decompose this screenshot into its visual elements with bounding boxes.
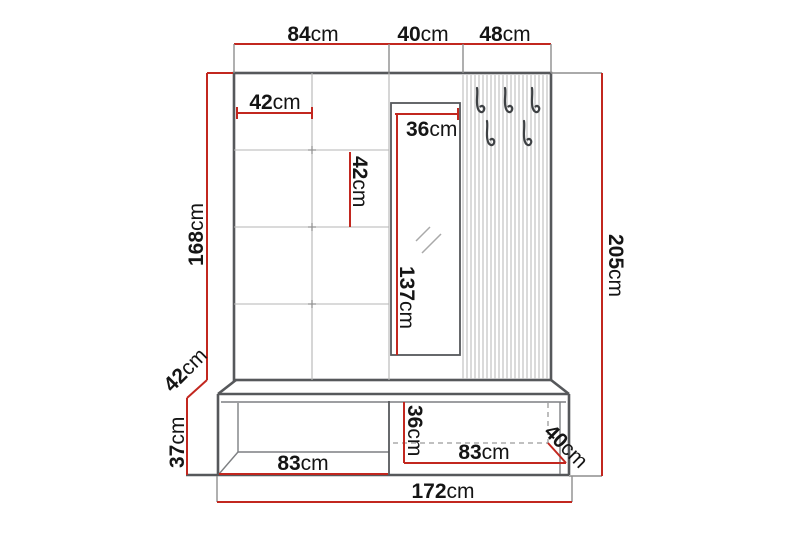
dim-top-ticks — [234, 44, 551, 73]
dim-panel-height-label: 168cm — [185, 203, 208, 266]
dim-bench-height-label: 37cm — [166, 417, 189, 468]
bench — [186, 380, 569, 475]
coat-hook-icon — [532, 88, 539, 112]
dim-bench-opening-label: 36cm — [403, 405, 426, 456]
dim-tile-width-label: 42cm — [249, 91, 300, 114]
bench-seat — [218, 380, 569, 394]
slats — [463, 75, 547, 379]
dim-bench-depth-label: 42cm — [159, 344, 212, 397]
coat-hooks — [477, 88, 539, 145]
dim-bench-right-width-label: 83cm — [458, 441, 509, 464]
dim-total-width-label: 172cm — [411, 480, 474, 503]
dim-top-left-label: 84cm — [287, 23, 338, 46]
wall-panel — [234, 73, 551, 380]
dimension-labels: 84cm 40cm 48cm 42cm 42cm 36cm 137cm 168c… — [159, 23, 627, 503]
dim-tile-height-label: 42cm — [348, 156, 371, 207]
dim-top-right-label: 48cm — [479, 23, 530, 46]
dim-mirror-height-label: 137cm — [395, 266, 418, 329]
dim-bench-left-width-label: 83cm — [277, 452, 328, 475]
mirror-glare-icon — [416, 227, 441, 253]
dim-bench-depth-line — [187, 380, 207, 398]
dim-172-connectors — [217, 476, 572, 502]
dim-total-height-label: 205cm — [604, 234, 627, 297]
slat-panel — [463, 75, 547, 379]
dim-mirror-width-label: 36cm — [406, 118, 457, 141]
dimension-diagram: 84cm 40cm 48cm 42cm 42cm 36cm 137cm 168c… — [0, 0, 800, 533]
dim-205-connectors — [551, 73, 602, 476]
dim-top-middle-label: 40cm — [397, 23, 448, 46]
dim-bench-right-depth-label: 40cm — [539, 420, 592, 473]
diagram-canvas: 84cm 40cm 48cm 42cm 42cm 36cm 137cm 168c… — [0, 0, 800, 533]
coat-hook-icon — [524, 121, 531, 145]
